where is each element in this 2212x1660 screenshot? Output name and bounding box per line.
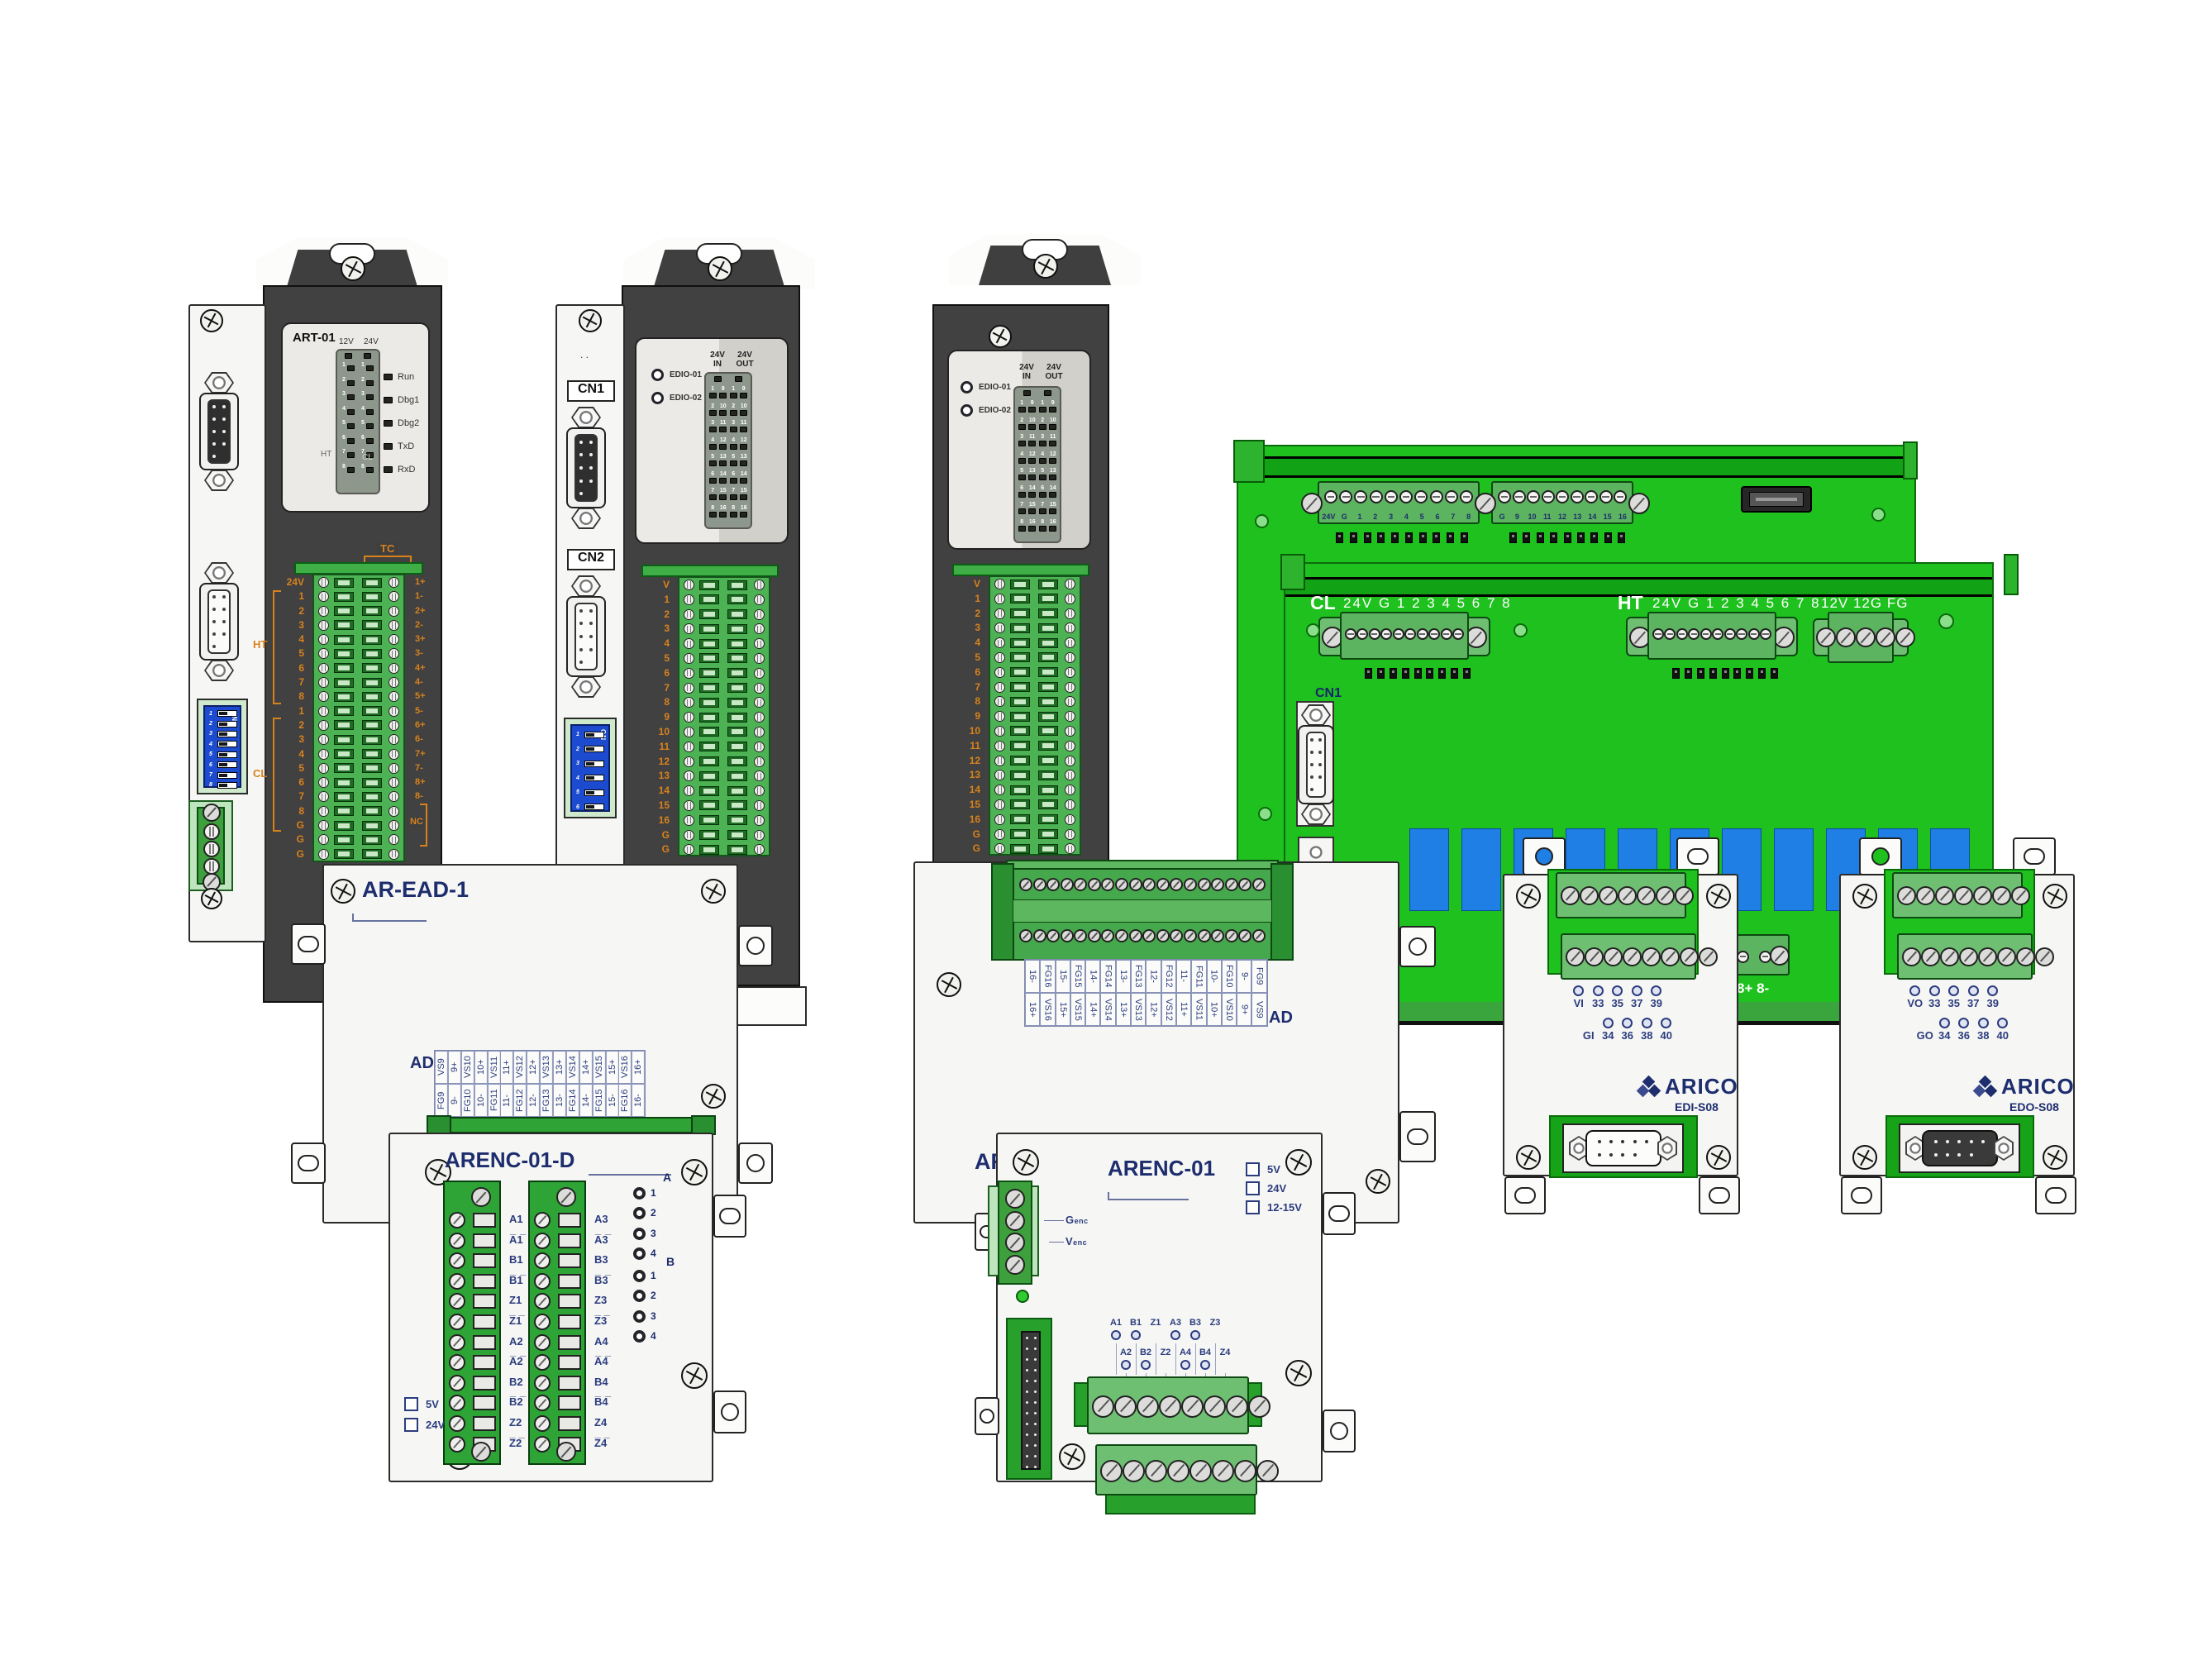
db9-female-connector [561, 575, 611, 698]
smd-component [1771, 668, 1778, 679]
terminal-screw [1061, 929, 1074, 942]
terminal-screw [318, 648, 329, 659]
clamp [1010, 844, 1030, 854]
terminal-screw [684, 712, 694, 723]
terminal-screw [1656, 886, 1675, 905]
led [740, 410, 747, 416]
dip-position: 6 [205, 760, 240, 770]
via [1997, 1018, 2008, 1028]
pointer-line [1044, 1220, 1064, 1221]
terminal-screw [1566, 947, 1585, 966]
clamp [473, 1355, 496, 1370]
led [730, 478, 737, 484]
led [347, 409, 355, 415]
terminal-screw [994, 711, 1005, 722]
terminal-screw [1614, 490, 1627, 503]
clamp [334, 749, 354, 759]
terminal-screw [318, 620, 329, 631]
terminal-screw [1198, 929, 1211, 942]
via-row-1: VI33353739 [1569, 985, 1666, 1009]
genc-label: Genc [1065, 1214, 1089, 1226]
clamp [1038, 756, 1058, 766]
relay [1461, 828, 1501, 911]
terminal-screw [1129, 929, 1142, 942]
lower-terminal [1897, 933, 2033, 980]
terminal-screw [318, 749, 329, 760]
terminal-screw [1114, 1395, 1137, 1418]
dip-position: 4 [205, 739, 240, 749]
terminal-screw [1074, 929, 1087, 942]
terminal-screw [389, 677, 399, 688]
terminal-screw [684, 653, 694, 664]
ad-pin-table: VS99+VS1010+VS1111+VS1212+VS1313+VS1414+… [434, 1050, 646, 1118]
terminal-block-2: A3 A̅3̅ B3 B̅3̅ Z3 Z̅3̅ A4 A̅4̅ B4 [528, 1181, 586, 1465]
mount-tab [1504, 1176, 1546, 1214]
terminal-screw [389, 834, 399, 845]
clamp [362, 849, 382, 859]
clamp [334, 849, 354, 859]
clamp [699, 683, 719, 693]
via [1141, 1360, 1151, 1370]
edio2-label: EDIO-02 [670, 394, 702, 403]
terminal-screw [1661, 947, 1680, 966]
led [384, 374, 393, 380]
led [730, 410, 737, 416]
led [1028, 407, 1036, 413]
cl-pin-labels: 24V G 1 2 3 4 5 6 7 8 [1343, 595, 1512, 612]
dip-position: 5 [205, 750, 240, 760]
terminal-screw [754, 844, 765, 855]
clamp [727, 727, 747, 737]
terminal-row: 24V [314, 575, 403, 589]
terminal-screw [1642, 947, 1661, 966]
power-leds [339, 353, 377, 362]
smd-component [1419, 532, 1427, 543]
clamp [727, 594, 747, 604]
mount-tab [1323, 1410, 1356, 1452]
terminal-row: 13 [990, 768, 1080, 783]
ad-pin-table: 16-FG1615-FG1514-FG1413-FG1312-FG1211-FG… [1024, 959, 1268, 1027]
clamp [334, 578, 354, 588]
via-row-1: VO33353739 [1905, 985, 2003, 1009]
clamp [1038, 829, 1058, 839]
terminal-screw [754, 668, 765, 679]
terminal-screw [1019, 929, 1032, 942]
dip-position: 2 [205, 718, 240, 728]
terminal-screw [449, 1293, 465, 1309]
terminal-screw [1959, 947, 1978, 966]
led [719, 427, 727, 432]
clamp [473, 1314, 496, 1329]
led [730, 427, 737, 432]
pin8-terminal [1732, 934, 1790, 975]
dip-slider [217, 772, 237, 779]
clamp [362, 606, 382, 616]
terminal-screw [1065, 579, 1075, 589]
led [740, 494, 747, 500]
hdr-24v-in: 24VIN [706, 351, 729, 369]
terminal-screw [1699, 947, 1718, 966]
via-row-2: GI34363840 [1579, 1018, 1676, 1042]
terminal-row: 4 [990, 636, 1080, 651]
terminal-screw [1370, 490, 1383, 503]
terminal-screw [389, 591, 399, 602]
clamp [362, 749, 382, 759]
flange-screw [1301, 493, 1323, 514]
terminal-screw [1585, 490, 1598, 503]
terminal-screw [534, 1354, 551, 1371]
terminal-row: Z4 [530, 1414, 584, 1434]
clamp [362, 706, 382, 716]
smd-component [1709, 668, 1717, 679]
status-leds: RunDbg1Dbg2TxDRxD [384, 365, 430, 489]
led [366, 394, 374, 400]
clamp [334, 821, 354, 831]
terminal-screw [754, 756, 765, 767]
led [347, 380, 355, 386]
terminal-screw [389, 663, 399, 674]
terminal-screw [1748, 628, 1760, 640]
philips-screw [1706, 884, 1731, 909]
led [384, 420, 393, 427]
clamp [699, 830, 719, 840]
dip-slider [217, 751, 237, 758]
via [1131, 1330, 1141, 1340]
terminal-screw [318, 720, 329, 731]
dip-positions: 12345678 [205, 708, 240, 790]
module-title: ARENC-01-D [445, 1147, 574, 1173]
clamp [334, 692, 354, 702]
terminal-screw [1065, 682, 1075, 693]
terminal-screw [1189, 1460, 1212, 1482]
pcb-pad [1255, 514, 1269, 528]
terminal-screw [449, 1436, 465, 1452]
led [633, 1207, 646, 1219]
clamp [1010, 814, 1030, 824]
checkbox [404, 1418, 418, 1432]
signal-row-2: A2B2Z2A4B4Z4 [1116, 1348, 1235, 1370]
terminal-row: 2 [314, 604, 403, 618]
terminal-screw [1712, 628, 1723, 640]
clamp [473, 1335, 496, 1350]
terminal-screw [318, 734, 329, 745]
terminal-screw [318, 849, 329, 860]
dip-slider [217, 710, 237, 717]
terminal-screw [1724, 628, 1736, 640]
terminal-row: V [679, 578, 769, 593]
terminal-row: 9 [679, 710, 769, 725]
terminal-screw [1623, 947, 1642, 966]
side-panel: ON 12345678 [188, 304, 266, 942]
pcb-pad [1258, 807, 1272, 821]
terminal-screw [994, 814, 1005, 825]
clamp [727, 713, 747, 723]
pcb-pad [1514, 623, 1528, 637]
terminal-screw [1088, 929, 1101, 942]
terminal-screw [1159, 1395, 1181, 1418]
via [1987, 985, 1998, 996]
led [366, 380, 374, 386]
enc-terminal [988, 1185, 1039, 1276]
led [740, 427, 747, 432]
dip-position: 6 [572, 800, 608, 815]
terminal-screw [534, 1212, 551, 1228]
terminal-screw [1065, 756, 1075, 766]
led [735, 376, 742, 382]
led [633, 1228, 646, 1240]
terminal-screw [1414, 490, 1428, 503]
terminal-screw [1637, 886, 1656, 905]
terminal-screw [1935, 886, 1954, 905]
status-led-row: TxD [384, 435, 430, 458]
terminal-row: Z2 [445, 1414, 499, 1434]
terminal-screw [754, 770, 765, 781]
terminal-screw [684, 742, 694, 752]
terminal-row: 10 [990, 724, 1080, 739]
terminal-screw [389, 763, 399, 774]
led [633, 1310, 646, 1323]
smd-component [1746, 668, 1753, 679]
smd-row [1509, 532, 1625, 543]
terminal-row: 14 [990, 783, 1080, 798]
philips-screw [681, 1159, 708, 1185]
clamp [473, 1274, 496, 1289]
terminal-row: 2 [990, 607, 1080, 622]
terminal-row: 2 [679, 608, 769, 622]
led [633, 1187, 646, 1200]
via [1651, 985, 1661, 996]
terminal-screw [1115, 929, 1128, 942]
terminal-screw [1005, 1255, 1025, 1275]
idc-ribbon-connector [1006, 1318, 1052, 1480]
terminal-screw [1142, 878, 1156, 891]
terminal-screw [1065, 608, 1075, 619]
smd-component [1402, 668, 1409, 679]
terminal-screw [994, 741, 1005, 751]
mount-hole [1409, 937, 1427, 956]
terminal-screw [754, 594, 765, 605]
clamp [334, 592, 354, 602]
clamp [362, 778, 382, 788]
smd-component [1509, 532, 1517, 543]
cl-bracket [273, 718, 281, 832]
clamp [1010, 712, 1030, 722]
clamp [699, 609, 719, 619]
via [1190, 1330, 1200, 1340]
cn1-housing [1296, 701, 1334, 827]
terminal-screw [1129, 878, 1142, 891]
terminal-screw [1675, 886, 1694, 905]
title-underline [589, 1174, 671, 1176]
clamp [334, 649, 354, 659]
smd-component [1336, 532, 1343, 543]
led [1018, 441, 1026, 446]
clamp [1038, 726, 1058, 736]
smd-component [1350, 532, 1357, 543]
cn1-label: CN1 [1315, 686, 1342, 701]
terminal-row: 5 [314, 646, 403, 661]
terminal-screw [754, 800, 765, 811]
clamp [1010, 638, 1030, 648]
led [366, 409, 374, 415]
philips-screw [1852, 1145, 1877, 1170]
clamp [362, 792, 382, 802]
module-arenc-01-d: ARENC-01-D A1 A̅1̅ B1 B̅1̅ Z1 Z̅1̅ A [389, 1133, 713, 1482]
edio1-led [961, 381, 973, 394]
philips-screw [1059, 1443, 1085, 1470]
philips-screw [1516, 884, 1541, 909]
header-12v: 12V [339, 337, 354, 346]
dip-position: 3 [572, 756, 608, 771]
dip-slider [584, 789, 604, 796]
clamp [1038, 667, 1058, 677]
terminal-screw [1226, 1395, 1248, 1418]
terminal-screw [994, 652, 1005, 663]
terminal-screw [754, 712, 765, 723]
clamp [727, 830, 747, 840]
terminal-row: A4 [530, 1333, 584, 1353]
terminal-screw [1074, 878, 1087, 891]
led [345, 353, 352, 359]
hardware-diagram: ON 12345678 ART-01 12V 24V [0, 0, 2212, 1660]
dip-position: 2 [572, 742, 608, 757]
clamp [334, 663, 354, 673]
dip-slider [217, 741, 237, 747]
terminal-screw [1618, 886, 1637, 905]
terminal-screw [534, 1233, 551, 1249]
terminal-row: 2 [314, 718, 403, 732]
arico-logo: ARICO [1638, 1074, 1738, 1100]
terminal-row: 5 [679, 651, 769, 666]
clamp [558, 1395, 581, 1410]
terminal-screw [1527, 490, 1540, 503]
via [1612, 985, 1623, 996]
terminal-screw [684, 756, 694, 767]
clamp [699, 845, 719, 855]
signal-row-1: A1B1Z1A3B3Z3 [1106, 1318, 1225, 1340]
terminal-screw [1033, 878, 1046, 891]
din-clip [2004, 554, 2019, 595]
terminal-screw [318, 706, 329, 717]
clamp [334, 678, 354, 688]
clamp [558, 1355, 581, 1370]
pcb-pad [1306, 623, 1320, 637]
philips-screw [2043, 1145, 2067, 1170]
clamp [334, 763, 354, 773]
led [1028, 475, 1036, 480]
terminal-connector [428, 1117, 714, 1133]
clamp [699, 727, 719, 737]
dip-position: 3 [205, 729, 240, 739]
terminal-screw [1065, 622, 1075, 633]
terminal-screw [1156, 878, 1170, 891]
terminal-screw [1760, 628, 1771, 640]
terminal-row: A̅3̅ [530, 1231, 584, 1252]
mount-tab [1399, 1111, 1436, 1162]
led [1039, 441, 1046, 446]
terminal-screw [1356, 628, 1368, 640]
terminal-screw [389, 691, 399, 702]
terminal-row: G [679, 828, 769, 843]
smd-component [1590, 532, 1598, 543]
terminal-screw [1101, 929, 1114, 942]
clamp [1038, 741, 1058, 751]
terminal-rail [641, 565, 779, 577]
clamp [558, 1253, 581, 1268]
clamp [473, 1376, 496, 1390]
dip-slider [584, 732, 604, 738]
smd-component [1672, 668, 1680, 679]
terminal-row: 12 [679, 755, 769, 770]
dip-slider [584, 746, 604, 752]
philips-screw [201, 888, 222, 909]
terminal-screw [1088, 878, 1101, 891]
pin-labels: 24VG12345678 [1321, 513, 1476, 521]
smd-component [1564, 532, 1571, 543]
clamp [362, 692, 382, 702]
clamp [362, 720, 382, 730]
voltage-option: 5V [1246, 1162, 1302, 1176]
terminal-screw [684, 830, 694, 841]
terminal-screw [534, 1415, 551, 1432]
terminal-screw [1997, 947, 2016, 966]
mount-tab [713, 1195, 746, 1238]
relay [1774, 828, 1814, 911]
lower-terminal [1561, 933, 1696, 980]
smd-component [1461, 532, 1468, 543]
led [709, 460, 717, 466]
smd-component [1685, 668, 1692, 679]
terminal-row: Z̅1̅ [445, 1312, 499, 1333]
clamp [699, 771, 719, 781]
mount-tab [1699, 1176, 1740, 1214]
pcb-pad [1871, 508, 1885, 522]
clamp [1010, 741, 1030, 751]
terminal-screw [1225, 929, 1238, 942]
led [1018, 475, 1026, 480]
terminal-screw [754, 830, 765, 841]
terminal-row: 13 [679, 769, 769, 784]
terminal-row: 7 [679, 681, 769, 696]
via-row-2: GO34363840 [1915, 1018, 2013, 1042]
terminal-screw [1736, 628, 1747, 640]
clamp [362, 620, 382, 630]
led [1018, 508, 1026, 514]
terminal-screw [1542, 490, 1555, 503]
philips-screw [1706, 1145, 1731, 1170]
via [1642, 1018, 1652, 1028]
cl-terminal-block [1340, 612, 1469, 660]
mount-hole [1535, 847, 1553, 866]
led [366, 438, 374, 444]
terminal-row: 3 [314, 732, 403, 747]
smd-component [1697, 668, 1704, 679]
mount-tab [713, 1390, 746, 1433]
dip-position: 5 [572, 785, 608, 800]
power-terminal-3pin [188, 800, 233, 891]
terminal-row: G [679, 842, 769, 857]
led [1028, 441, 1036, 446]
terminal-screw [1198, 878, 1211, 891]
idc-pins [1021, 1331, 1041, 1470]
terminal-screw [318, 591, 329, 602]
terminal-row: G [314, 847, 403, 861]
terminal-screw [1184, 878, 1197, 891]
flange-screw [556, 1442, 576, 1462]
title-underline [352, 913, 427, 922]
via [1593, 985, 1604, 996]
via [1170, 1330, 1180, 1340]
